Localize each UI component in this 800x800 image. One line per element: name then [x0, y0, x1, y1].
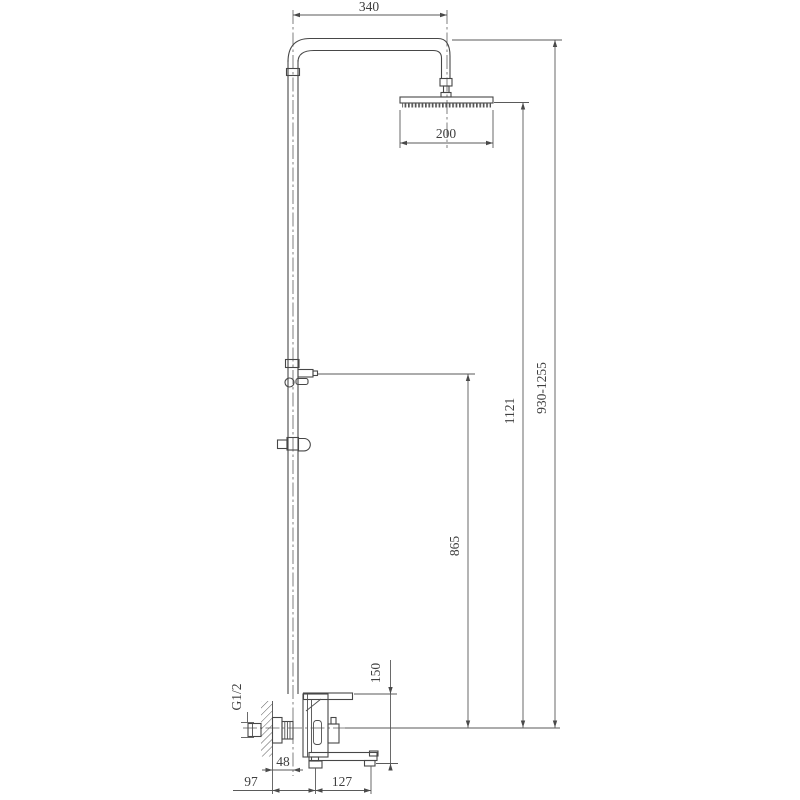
wall-mount [248, 701, 293, 757]
mixer-valve [303, 693, 378, 768]
outlet-nipple [313, 371, 318, 376]
diverter-stem [331, 718, 336, 725]
centerlines [243, 10, 447, 776]
head-swivel-nut [440, 79, 452, 87]
dim-wall-offset-label: 48 [276, 754, 290, 769]
cartridge-slot [314, 721, 322, 745]
inlet-stub [248, 724, 261, 737]
arm-inner-edge [298, 51, 442, 79]
arm-outer-edge [288, 39, 450, 79]
wall-hatch [261, 701, 273, 757]
dim-wall-offset: 48 [262, 754, 303, 794]
dim-spout-reach: 127 [316, 766, 372, 794]
hose-port [309, 761, 322, 768]
dim-arm-reach-label: 340 [359, 0, 380, 14]
technical-drawing-shower-system: G1/2 340 200 1121 930-1255 865 [0, 0, 800, 800]
dim-outlet-height-label: 865 [447, 536, 462, 557]
dim-spout-reach-label: 127 [332, 774, 353, 789]
dim-head-height-label: 1121 [502, 398, 517, 425]
holder-hook [299, 439, 311, 451]
handle-joint-line [306, 699, 321, 711]
dim-body-height-label: 150 [368, 663, 383, 684]
dim-total-height-label: 930-1255 [534, 362, 549, 414]
escutcheon-flange [273, 718, 283, 744]
dim-body-height: 150 [354, 660, 398, 771]
dim-head-size-label: 200 [436, 126, 457, 141]
thread-callout: G1/2 [229, 684, 254, 738]
dim-head-height: 1121 [494, 103, 529, 728]
dim-outlet-height: 865 [318, 374, 475, 728]
handshower-holder [278, 438, 311, 451]
shower-head [400, 79, 493, 108]
dim-head-size: 200 [400, 110, 493, 148]
holder-tab [278, 440, 288, 449]
head-cone [441, 93, 451, 98]
handshower-outlet [285, 370, 318, 388]
shower-arm-assembly [286, 39, 451, 695]
diverter-pull-knob [328, 724, 339, 743]
outlet-body [298, 370, 313, 378]
drawing-sheet: G1/2 340 200 1121 930-1255 865 [0, 0, 800, 800]
head-plate [400, 97, 493, 103]
dim-arm-reach: 340 [293, 0, 447, 17]
dim-wall-to-port: 97 [233, 768, 316, 794]
dim-wall-to-port-label: 97 [244, 774, 258, 789]
spout-outlet [365, 761, 376, 767]
head-stem [444, 86, 450, 93]
head-nozzle-row [402, 103, 491, 108]
thread-label: G1/2 [229, 684, 244, 711]
